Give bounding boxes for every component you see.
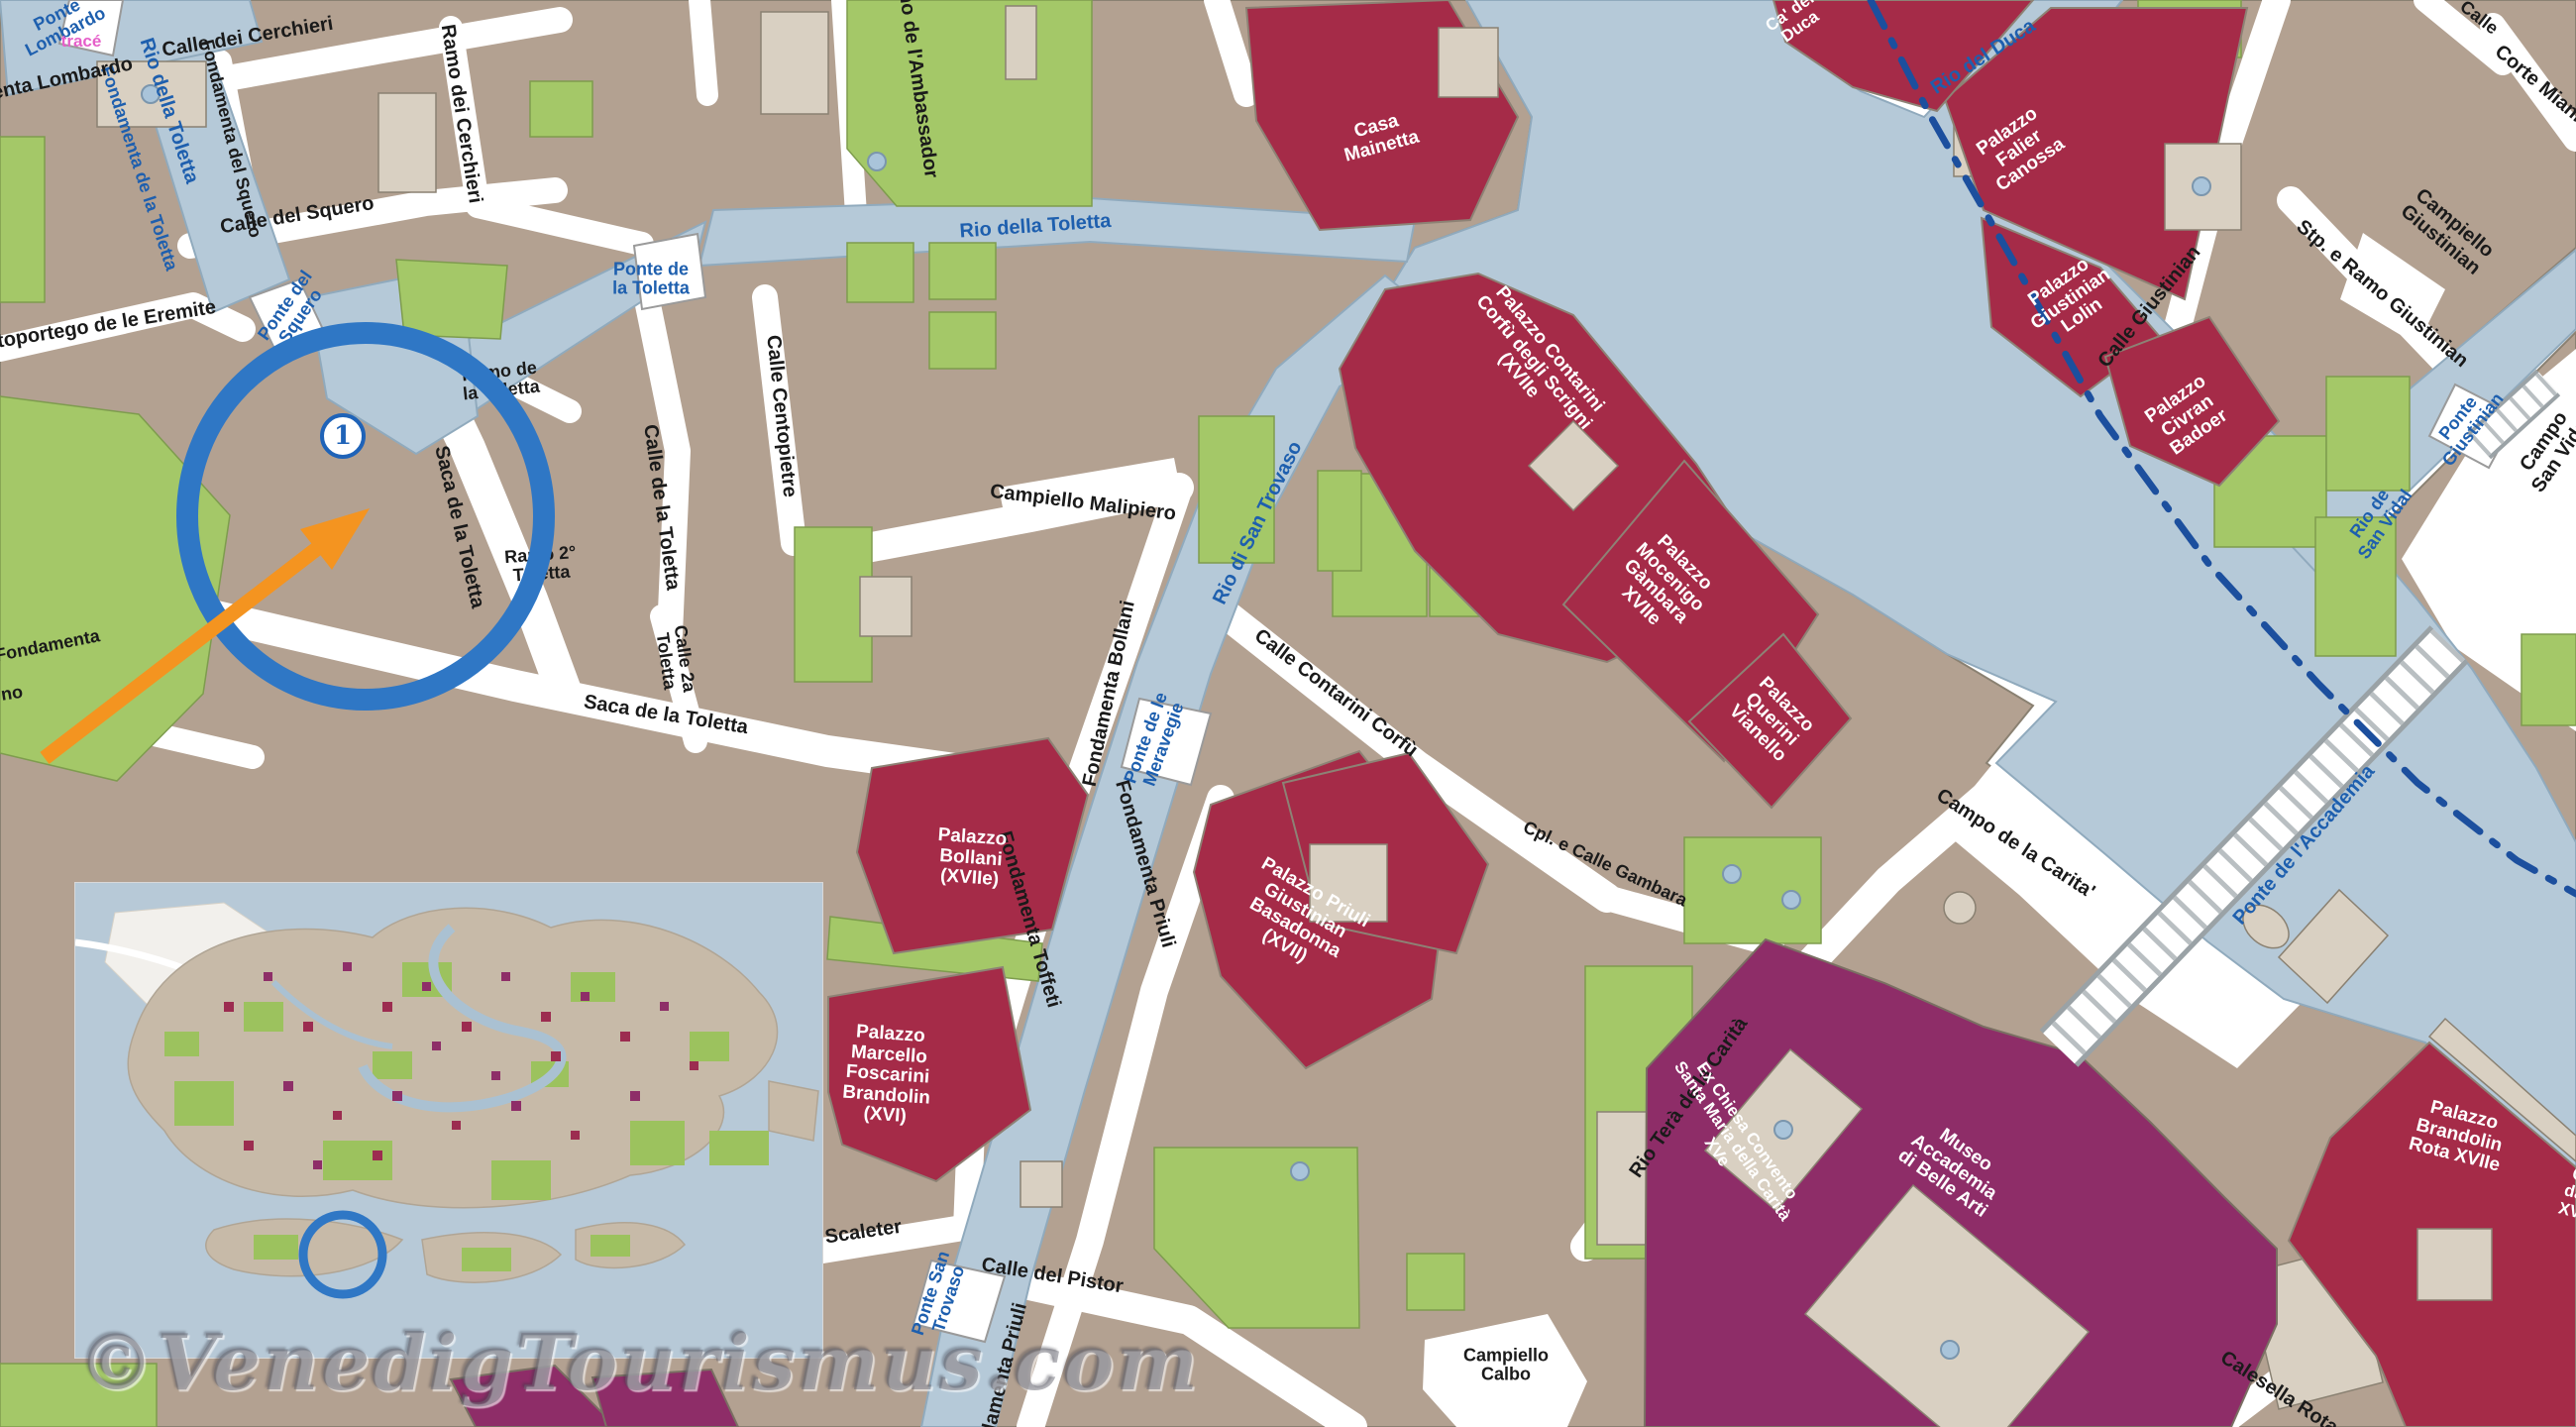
venice-overview-inset	[75, 883, 822, 1358]
well-dot	[1774, 1121, 1792, 1139]
inset-green	[254, 1235, 298, 1260]
green-area	[530, 81, 592, 137]
location-marker-1: 1	[320, 413, 366, 459]
inset-speckle	[303, 1022, 313, 1032]
courtyard-building	[860, 577, 912, 636]
inset-speckle	[491, 1071, 500, 1080]
well-dot	[868, 153, 886, 170]
street	[699, 0, 707, 95]
inset-speckle	[313, 1160, 322, 1169]
label-campiello-calbo: CampielloCalbo	[1463, 1347, 1549, 1385]
label-ramo-2-toletta: Ramo 2°Toletta	[504, 543, 579, 587]
inset-speckle	[541, 1012, 551, 1022]
well-dot	[2193, 177, 2210, 195]
well-dot	[1291, 1162, 1309, 1180]
green-area	[847, 243, 913, 302]
green-area	[1318, 471, 1361, 571]
courtyard-building	[761, 12, 828, 114]
green-area	[1684, 837, 1821, 943]
courtyard-building	[1006, 6, 1036, 79]
green-area	[847, 0, 1092, 206]
well-dot	[1723, 865, 1741, 883]
inset-green	[244, 1002, 283, 1032]
marker-number: 1	[334, 421, 352, 451]
inset-green	[709, 1131, 769, 1165]
watermark: ©VenedigTourismus.com	[77, 1318, 1200, 1408]
label-ramo-de-la-toletta: Ramo dela Toletta	[460, 359, 540, 405]
inset-green	[491, 1160, 551, 1200]
inset-speckle	[392, 1091, 402, 1101]
inset-speckle	[264, 972, 272, 981]
inset-island	[769, 1081, 818, 1141]
courtyard-building	[1020, 1161, 1062, 1207]
inset-speckle	[501, 972, 510, 981]
green-area	[0, 137, 45, 302]
inset-map	[75, 883, 822, 1358]
inset-speckle	[422, 982, 431, 991]
well-dot	[1782, 891, 1800, 909]
inset-speckle	[571, 1131, 580, 1140]
inset-green	[590, 1235, 630, 1257]
courtyard-building	[1439, 28, 1498, 97]
green-area	[1407, 1254, 1464, 1310]
label-calle-2a-toletta: Calle 2aToletta	[651, 624, 698, 697]
green-area	[929, 312, 996, 369]
inset-speckle	[224, 1002, 234, 1012]
label-palazzo-bollani: PalazzoBollani(XVIIe)	[934, 825, 1008, 891]
inset-green	[571, 972, 615, 1002]
green-area	[2522, 634, 2576, 725]
inset-speckle	[343, 962, 352, 971]
inset-green	[690, 1032, 729, 1061]
courtyard-building	[2417, 1229, 2492, 1300]
inset-speckle	[373, 1151, 382, 1160]
courtyard-building	[378, 93, 436, 192]
inset-speckle	[244, 1141, 254, 1151]
courtyard-building	[1944, 892, 1976, 924]
label-palazzo-marcello-foscarini: PalazzoMarcelloFoscariniBrandolin(XVI)	[840, 1022, 935, 1130]
inset-speckle	[620, 1032, 630, 1042]
venice-street-map: PonteLombardo Rio della Toletta Fondamen…	[0, 0, 2576, 1427]
inset-speckle	[462, 1022, 472, 1032]
inset-speckle	[630, 1091, 640, 1101]
inset-green	[462, 1248, 511, 1271]
inset-green	[630, 1121, 685, 1165]
label-street-fragment: no	[0, 683, 24, 706]
green-area	[2326, 377, 2410, 491]
inset-green	[373, 1051, 412, 1079]
inset-speckle	[382, 1002, 392, 1012]
label-ponte-de-la-toletta: Ponte dela Toletta	[612, 261, 690, 299]
inset-speckle	[581, 992, 590, 1001]
inset-green	[174, 1081, 234, 1126]
green-area	[929, 243, 996, 299]
green-area	[396, 260, 507, 339]
inset-speckle	[660, 1002, 669, 1011]
inset-speckle	[333, 1111, 342, 1120]
inset-speckle	[283, 1081, 293, 1091]
inset-speckle	[511, 1101, 521, 1111]
inset-speckle	[432, 1042, 441, 1050]
inset-speckle	[452, 1121, 461, 1130]
well-dot	[1941, 1341, 1959, 1359]
inset-speckle	[551, 1051, 561, 1061]
inset-speckle	[690, 1061, 698, 1070]
label-trace: tracé	[61, 33, 102, 51]
inset-green	[164, 1032, 199, 1056]
